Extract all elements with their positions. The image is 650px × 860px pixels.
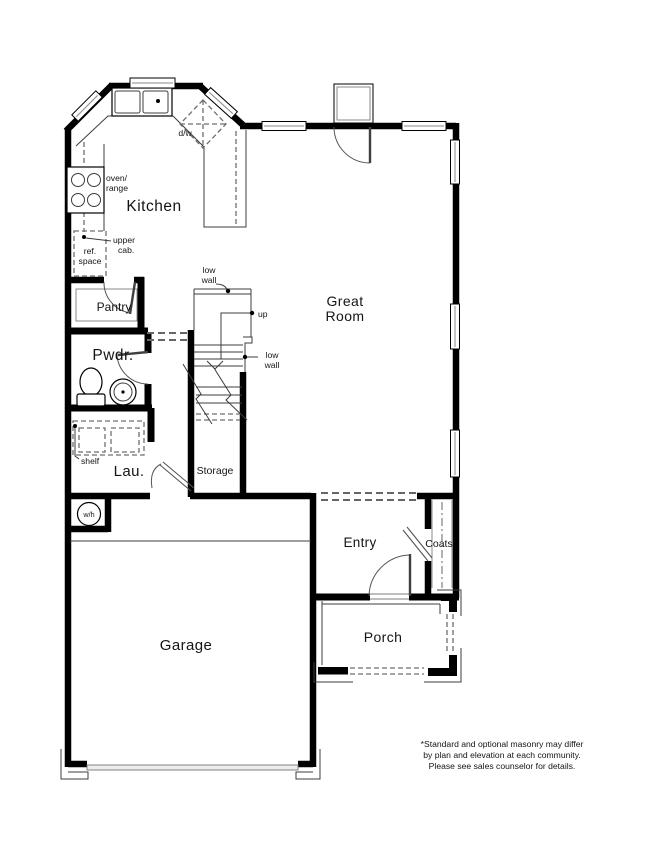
disclaimer-line-3: Please see sales counselor for details.: [429, 761, 576, 771]
room-label-entry: Entry: [343, 535, 376, 550]
window-chamfer-right: [205, 88, 238, 119]
kitchen-sink: [112, 88, 172, 116]
rear-door: [334, 84, 373, 163]
oven-range: [67, 167, 104, 213]
room-label-storage: Storage: [197, 465, 234, 477]
label-dishwasher: d/w: [178, 128, 192, 138]
window-chamfer-left: [72, 91, 102, 121]
window-right-2: [451, 304, 460, 349]
windows: [72, 78, 460, 477]
window-kitchen-sink: [130, 78, 175, 88]
window-greatroom-top-2: [402, 122, 446, 131]
label-oven-2: range: [106, 183, 128, 193]
label-upper-cab-2: cab.: [118, 245, 134, 255]
garage-door: [87, 765, 298, 770]
window-greatroom-top-1: [262, 122, 306, 131]
label-water-heater: w/h: [82, 510, 94, 519]
room-label-laundry: Lau.: [114, 463, 145, 480]
toilet: [77, 368, 105, 406]
label-low-wall-top-1: low: [203, 265, 217, 275]
room-label-pantry: Pantry: [97, 300, 132, 314]
label-ref-1: ref.: [84, 246, 96, 256]
front-door: [369, 554, 410, 601]
disclaimer-line-2: by plan and elevation at each community.: [423, 750, 581, 760]
label-low-wall-right-2: wall: [264, 360, 280, 370]
window-right-1: [451, 140, 460, 184]
garage-details: [61, 541, 320, 779]
room-label-great-room-1: Great: [326, 293, 363, 309]
floor-plan-drawing: Kitchen Great Room Pantry Pwdr. Lau. Sto…: [0, 0, 650, 860]
dashed-openings: [147, 333, 417, 500]
powder-sink: [110, 379, 136, 405]
room-label-porch: Porch: [364, 629, 403, 645]
label-upper-cab-1: upper: [113, 235, 135, 245]
label-oven-1: oven/: [106, 173, 128, 183]
label-low-wall-right-1: low: [266, 350, 280, 360]
room-label-kitchen: Kitchen: [126, 198, 181, 215]
interior-walls: [68, 277, 456, 595]
washer-dryer-space: [73, 421, 144, 459]
annotations: d/w oven/ range upper cab. ref. space lo…: [79, 128, 280, 519]
disclaimer-line-1: *Standard and optional masonry may diffe…: [421, 739, 584, 749]
label-up: up: [258, 309, 268, 319]
label-shelf: shelf: [81, 456, 100, 466]
label-low-wall-top-2: wall: [201, 275, 217, 285]
room-labels: Kitchen Great Room Pantry Pwdr. Lau. Sto…: [92, 198, 452, 654]
room-label-garage: Garage: [160, 637, 212, 654]
room-label-powder: Pwdr.: [92, 347, 133, 364]
disclaimer: *Standard and optional masonry may diffe…: [421, 739, 584, 771]
floor-plan-page: Kitchen Great Room Pantry Pwdr. Lau. Sto…: [0, 0, 650, 860]
room-label-coats: Coats: [425, 538, 452, 550]
room-label-great-room-2: Room: [326, 308, 365, 324]
storage-door: [151, 462, 194, 491]
label-ref-2: space: [79, 256, 102, 266]
window-right-3: [451, 430, 460, 477]
